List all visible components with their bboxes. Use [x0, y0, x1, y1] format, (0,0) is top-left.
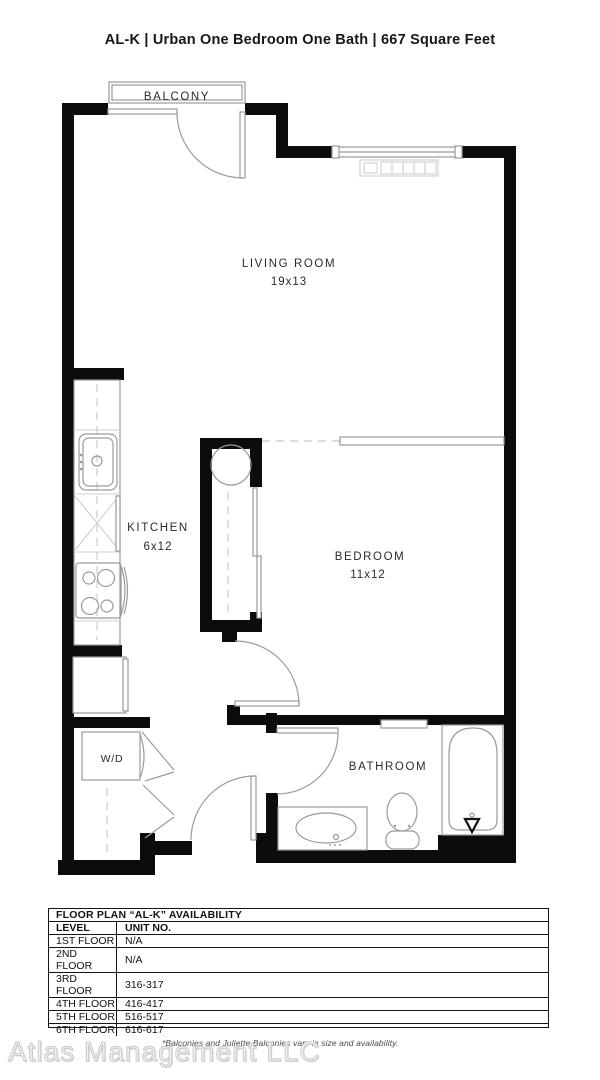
- table-row: 6TH FLOOR 616-617: [49, 1023, 548, 1036]
- availability-table: FLOOR PLAN “AL-K” AVAILABILITY LEVEL UNI…: [48, 908, 549, 1028]
- bathroom-door: [277, 728, 338, 794]
- living-room: LIVING ROOM 19x13: [242, 146, 462, 288]
- window: [332, 146, 462, 158]
- bathroom-label: BATHROOM: [349, 761, 427, 773]
- baseboard-heater: [360, 160, 438, 176]
- watermark: Atlas Management LLC: [8, 1036, 321, 1068]
- bathtub: [442, 725, 503, 835]
- shelf-niche: [381, 720, 427, 728]
- table-row: 4TH FLOOR 416-417: [49, 997, 548, 1010]
- kitchen-label: KITCHEN: [127, 522, 189, 534]
- sliding-partition: [340, 437, 504, 445]
- table-row: 1ST FLOOR N/A: [49, 934, 548, 947]
- washer-dryer-label: W/D: [101, 753, 124, 765]
- floor-plan-page: AL-K | Urban One Bedroom One Bath | 667 …: [0, 0, 600, 1080]
- closet-sliding-door: [253, 488, 257, 556]
- floor-plan: BALCONY LIVING ROOM: [0, 0, 600, 900]
- water-heater: [211, 445, 251, 485]
- refrigerator: [73, 657, 128, 713]
- availability-table-title: FLOOR PLAN “AL-K” AVAILABILITY: [49, 909, 548, 921]
- column-header-level: LEVEL: [49, 922, 117, 934]
- kitchen: KITCHEN 6x12: [73, 380, 189, 713]
- laundry-closet: W/D: [82, 732, 174, 854]
- bifold-door: [143, 785, 174, 838]
- availability-table-header: LEVEL UNIT NO.: [49, 921, 548, 934]
- entry-door: [191, 776, 256, 840]
- table-row: 5TH FLOOR 516-517: [49, 1010, 548, 1023]
- kitchen-dimensions: 6x12: [144, 541, 173, 553]
- living-room-label: LIVING ROOM: [242, 258, 336, 270]
- bathroom: BATHROOM: [277, 720, 503, 850]
- bifold-door: [142, 732, 174, 781]
- balcony-label: BALCONY: [144, 91, 210, 103]
- column-header-unit-no: UNIT NO.: [117, 922, 171, 934]
- bedroom-label: BEDROOM: [335, 551, 406, 563]
- vanity-sink: [278, 807, 367, 850]
- toilet: [386, 793, 419, 849]
- table-row: 3RD FLOOR 316-317: [49, 972, 548, 997]
- living-room-dimensions: 19x13: [271, 276, 307, 288]
- balcony-threshold: [108, 109, 177, 114]
- bedroom-dimensions: 11x12: [350, 569, 385, 581]
- table-row: 2ND FLOOR N/A: [49, 947, 548, 972]
- bedroom-door: [235, 641, 299, 706]
- balcony: BALCONY: [108, 82, 245, 178]
- closet-sliding-door: [257, 556, 261, 618]
- balcony-door: [177, 112, 245, 178]
